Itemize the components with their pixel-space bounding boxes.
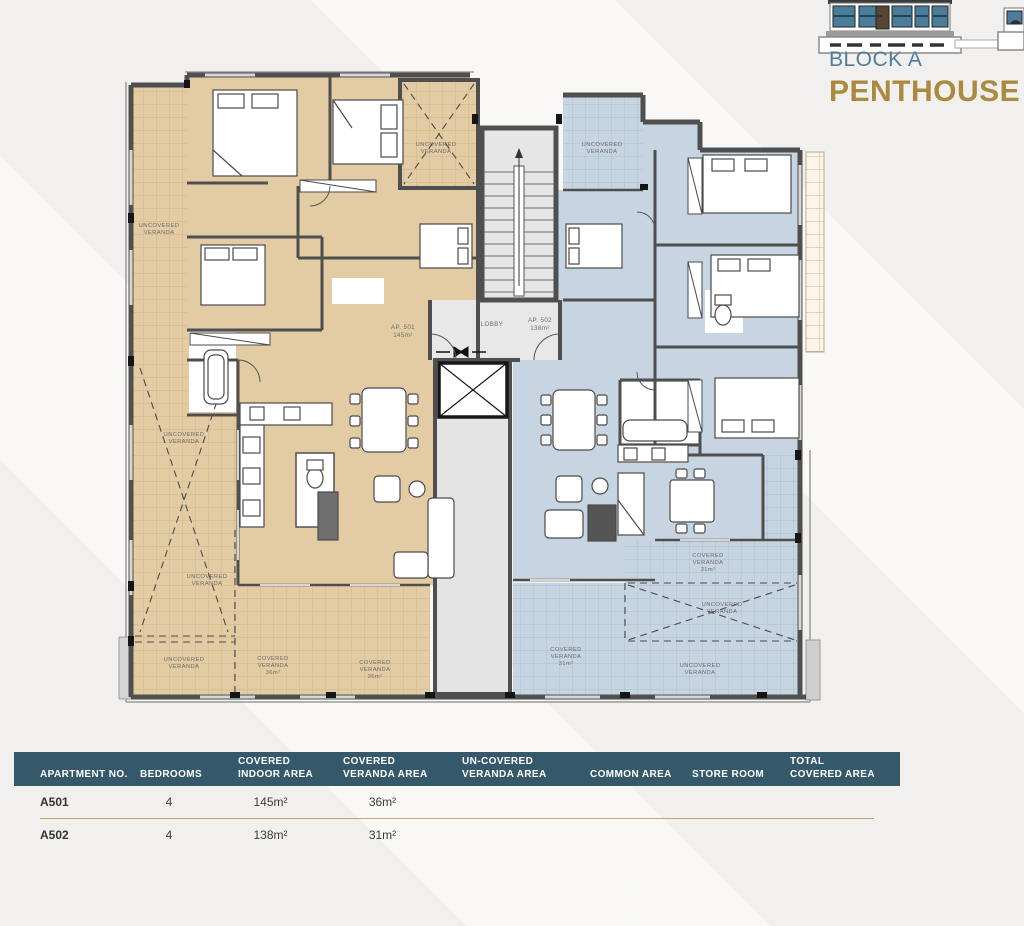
exterior-step-right <box>806 640 820 700</box>
svg-text:UNCOVERED: UNCOVERED <box>164 432 205 438</box>
svg-text:VERANDA: VERANDA <box>587 149 618 155</box>
col-apartment-no: APARTMENT NO. <box>14 769 140 787</box>
bedrooms: 4 <box>140 795 238 809</box>
covered-veranda-area: 36m² <box>343 795 462 809</box>
table-header: APARTMENT NO. BEDROOMS COVERED INDOOR AR… <box>14 752 900 786</box>
covered-indoor-area: 138m² <box>238 828 343 842</box>
svg-text:VERANDA: VERANDA <box>707 609 738 615</box>
apartment-no: A501 <box>14 795 140 809</box>
covered-veranda-area: 31m² <box>343 828 462 842</box>
ap502-label: AP. 502 <box>528 317 552 324</box>
svg-text:COVERED: COVERED <box>257 656 288 662</box>
col-common-area: COMMON AREA <box>590 769 692 787</box>
covered-indoor-area: 145m² <box>238 795 343 809</box>
svg-text:VERANDA: VERANDA <box>421 149 452 155</box>
bed <box>333 100 403 164</box>
elevator <box>439 363 507 417</box>
svg-text:VERANDA: VERANDA <box>551 654 582 660</box>
svg-text:31m²: 31m² <box>559 661 574 667</box>
svg-text:VERANDA: VERANDA <box>693 560 724 566</box>
area-table: APARTMENT NO. BEDROOMS COVERED INDOOR AR… <box>14 752 900 851</box>
svg-text:VERANDA: VERANDA <box>360 667 391 673</box>
table-row: A501 4 145m² 36m² <box>14 786 900 818</box>
bed <box>420 224 472 268</box>
svg-text:UNCOVERED: UNCOVERED <box>139 223 180 229</box>
svg-text:COVERED: COVERED <box>359 660 390 666</box>
svg-text:UNCOVERED: UNCOVERED <box>164 657 205 663</box>
svg-text:138m²: 138m² <box>530 325 550 332</box>
svg-text:VERANDA: VERANDA <box>685 670 716 676</box>
col-covered-veranda: COVERED VERANDA AREA <box>343 756 462 786</box>
svg-text:UNCOVERED: UNCOVERED <box>416 142 457 148</box>
svg-text:36m²: 36m² <box>266 670 281 676</box>
col-store-room: STORE ROOM <box>692 769 790 787</box>
svg-text:36m²: 36m² <box>368 674 383 680</box>
apartment-no: A502 <box>14 828 140 842</box>
svg-text:VERANDA: VERANDA <box>169 664 200 670</box>
bed <box>715 378 799 438</box>
col-bedrooms: BEDROOMS <box>140 769 238 787</box>
svg-text:UNCOVERED: UNCOVERED <box>582 142 623 148</box>
svg-text:145m²: 145m² <box>393 332 413 339</box>
table-row: A502 4 138m² 31m² <box>14 819 900 851</box>
bed <box>213 90 297 176</box>
svg-text:VERANDA: VERANDA <box>258 663 289 669</box>
bed <box>201 245 265 305</box>
svg-text:UNCOVERED: UNCOVERED <box>702 602 743 608</box>
page: { "title_block": { "block": "BLOCK A", "… <box>0 0 1024 926</box>
svg-text:VERANDA: VERANDA <box>144 230 175 236</box>
svg-text:VERANDA: VERANDA <box>192 581 223 587</box>
unit-a501 <box>131 75 478 697</box>
col-covered-indoor: COVERED INDOOR AREA <box>238 756 343 786</box>
svg-text:VERANDA: VERANDA <box>169 439 200 445</box>
svg-text:UNCOVERED: UNCOVERED <box>187 574 228 580</box>
svg-text:COVERED: COVERED <box>550 647 581 653</box>
svg-text:31m²: 31m² <box>701 567 716 573</box>
ap501-label: AP. 501 <box>391 324 415 331</box>
col-uncovered-veranda: UN-COVERED VERANDA AREA <box>462 756 590 786</box>
svg-text:COVERED: COVERED <box>692 553 723 559</box>
bedrooms: 4 <box>140 828 238 842</box>
col-total-covered: TOTAL COVERED AREA <box>790 756 886 786</box>
bed <box>703 155 791 213</box>
lobby-label: LOBBY <box>481 321 504 328</box>
bed <box>566 224 622 268</box>
svg-text:UNCOVERED: UNCOVERED <box>680 663 721 669</box>
